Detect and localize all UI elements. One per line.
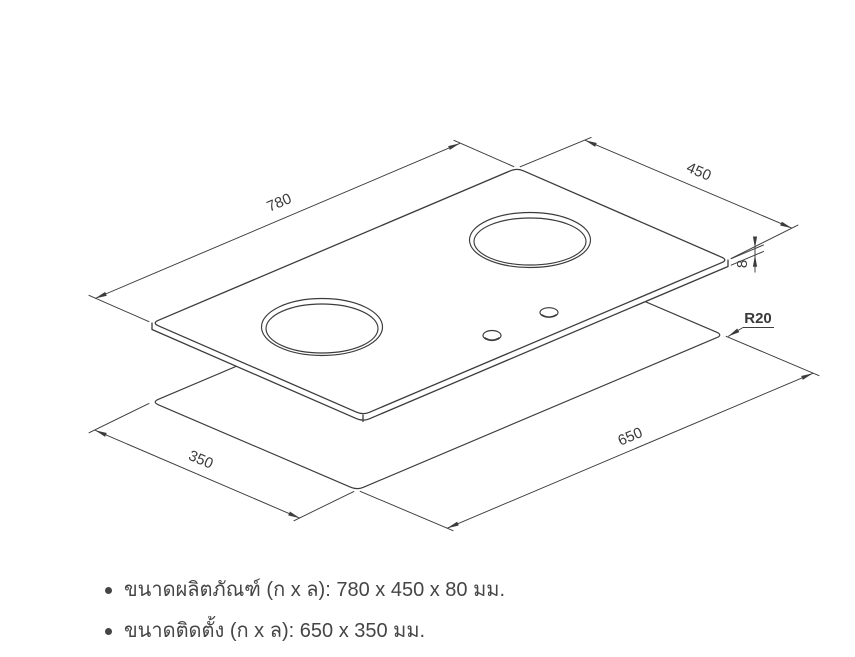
- dimension-cutout-350: 350: [89, 403, 355, 521]
- note-installation-size: ขนาดติดตั้ง (ก x ล): 650 x 350 มม.: [105, 619, 425, 643]
- dim-thickness-label: 8: [734, 260, 751, 268]
- note-product-size-text: ขนาดผลิตภัณฑ์ (ก x ล): 780 x 450 x 80 มม…: [124, 578, 505, 602]
- panel-top-face: [155, 169, 725, 413]
- hob-panel: [152, 168, 728, 422]
- dim-cutout-length-label: 650: [615, 424, 645, 449]
- hob-spec-page: 780 450 8 R20 650: [0, 0, 855, 657]
- dim-cutout-width-label: 350: [186, 447, 216, 472]
- hob-dimension-drawing: 780 450 8 R20 650: [0, 0, 855, 560]
- radius-label: R20: [744, 310, 772, 327]
- bullet-icon: [105, 628, 112, 635]
- radius-callout-r20: R20: [728, 310, 774, 337]
- dimension-thickness-8: 8: [731, 237, 764, 273]
- bullet-icon: [105, 587, 112, 594]
- note-installation-size-text: ขนาดติดตั้ง (ก x ล): 650 x 350 มม.: [124, 619, 425, 643]
- dim-depth-label: 450: [684, 159, 714, 184]
- note-product-size: ขนาดผลิตภัณฑ์ (ก x ล): 780 x 450 x 80 มม…: [105, 578, 505, 602]
- dim-width-label: 780: [264, 190, 294, 215]
